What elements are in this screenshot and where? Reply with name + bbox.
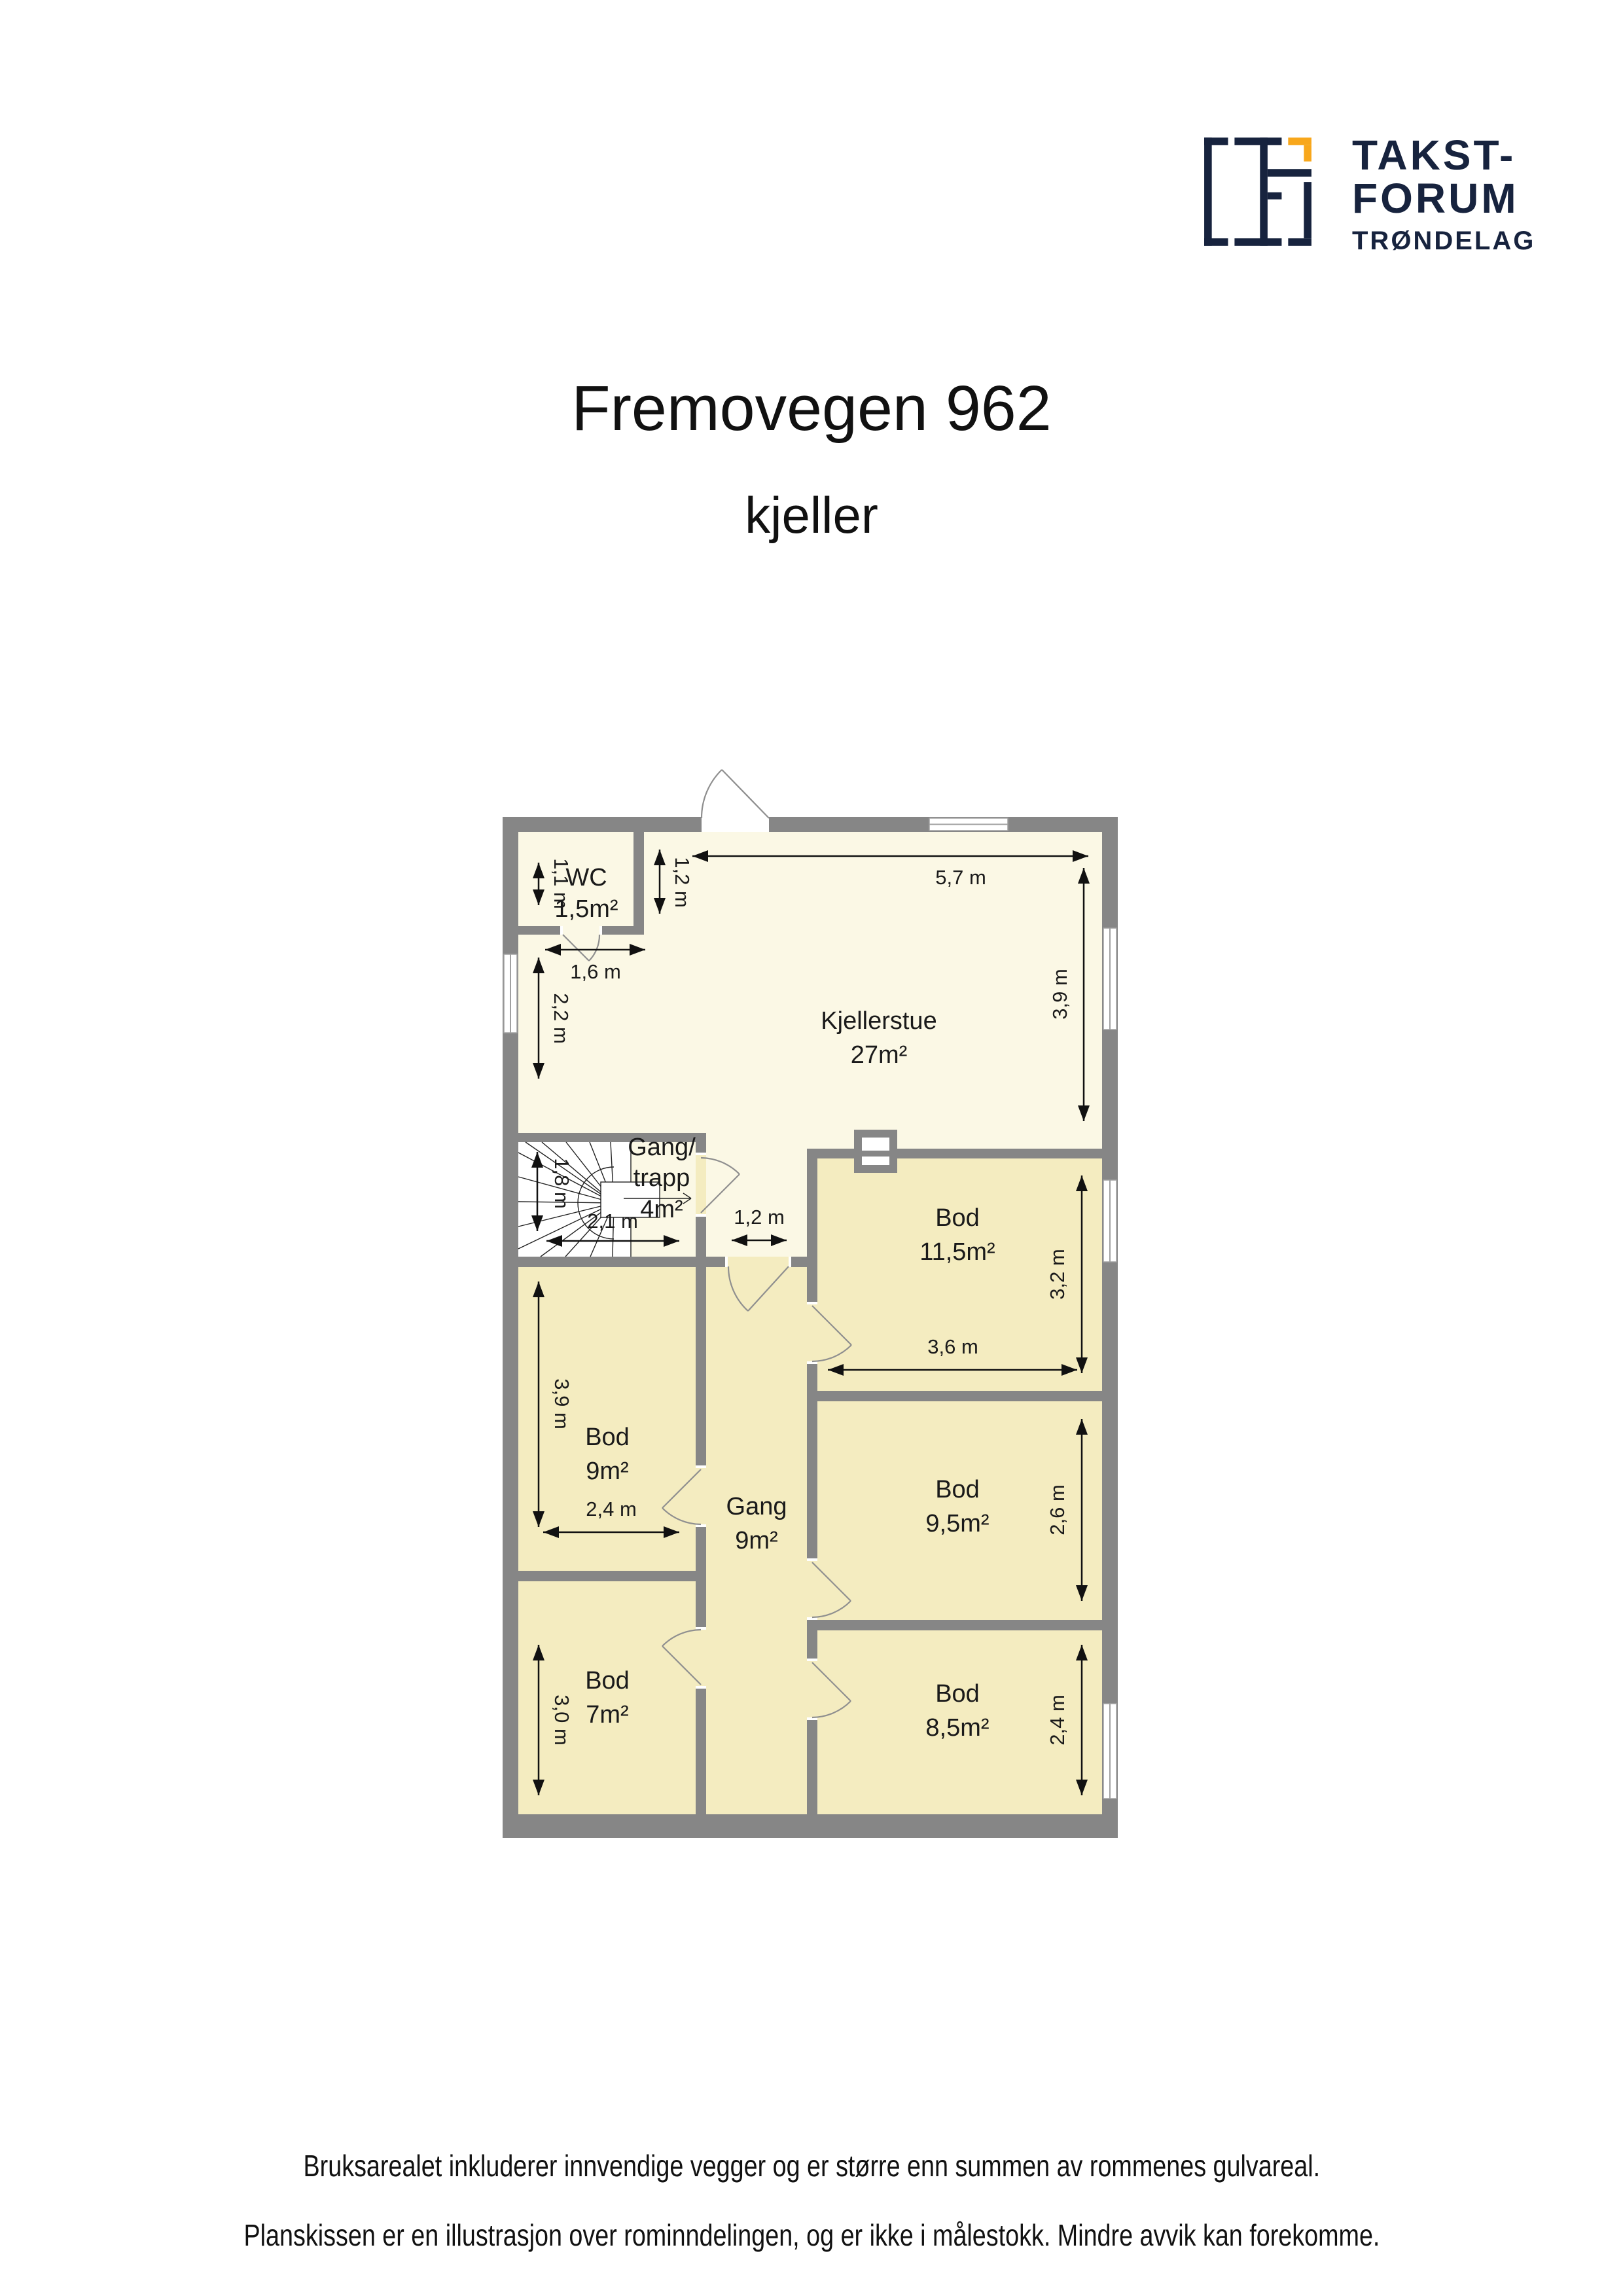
svg-text:9m²: 9m² <box>586 1458 628 1485</box>
wall-corridor-right-a <box>807 1149 817 1302</box>
svg-text:WC: WC <box>565 864 607 891</box>
footer-disclaimer-2: Planskissen er en illustrasjon over romi… <box>0 2217 1623 2253</box>
svg-text:7m²: 7m² <box>586 1701 628 1729</box>
wall-mid-a <box>518 1257 725 1267</box>
svg-text:2,2 m: 2,2 m <box>550 993 573 1044</box>
svg-text:5,7 m: 5,7 m <box>935 866 986 889</box>
wall-bod115-bod95 <box>817 1391 1102 1401</box>
wall-wc-bottom-b <box>602 926 644 935</box>
svg-text:Bod: Bod <box>935 1204 980 1232</box>
svg-text:Bod: Bod <box>935 1680 980 1708</box>
svg-text:2,4 m: 2,4 m <box>1046 1695 1069 1746</box>
svg-text:2,6 m: 2,6 m <box>1046 1484 1069 1535</box>
svg-text:Kjellerstue: Kjellerstue <box>821 1007 936 1035</box>
wall-mid-b <box>791 1257 810 1267</box>
svg-text:1,5m²: 1,5m² <box>554 895 618 923</box>
window-right-kjellerstue <box>1103 928 1116 1030</box>
logo-line-2: FORUM <box>1352 177 1535 220</box>
svg-text:8,5m²: 8,5m² <box>925 1714 989 1742</box>
svg-text:9m²: 9m² <box>735 1527 777 1554</box>
svg-text:27m²: 27m² <box>851 1041 908 1069</box>
chimney <box>854 1130 897 1173</box>
svg-text:3,0 m: 3,0 m <box>550 1695 573 1746</box>
svg-text:3,2 m: 3,2 m <box>1046 1249 1069 1300</box>
document-page: TAKST- FORUM TRØNDELAG Fremovegen 962 kj… <box>0 0 1623 2296</box>
door-entry <box>702 770 769 818</box>
logo-line-3: TRØNDELAG <box>1352 226 1535 256</box>
svg-text:3,6 m: 3,6 m <box>927 1335 978 1358</box>
entry-door-opening <box>702 817 769 832</box>
svg-text:1,8 m: 1,8 m <box>550 1158 573 1209</box>
wall-bod95-bod85 <box>817 1620 1102 1630</box>
svg-text:1,2 m: 1,2 m <box>734 1206 785 1229</box>
room-fill-corridor-top <box>706 1133 807 1257</box>
svg-text:2,4 m: 2,4 m <box>586 1498 637 1520</box>
svg-text:trapp: trapp <box>633 1164 690 1192</box>
wall-corridor-right-d <box>807 1720 817 1814</box>
wall-bod9-bod7 <box>518 1571 706 1581</box>
chimney-flue-2 <box>862 1157 889 1165</box>
wall-wc-bottom-a <box>518 926 560 935</box>
page-title: Fremovegen 962 <box>0 372 1623 445</box>
page-subtitle: kjeller <box>0 486 1623 545</box>
svg-text:Bod: Bod <box>935 1476 980 1503</box>
wall-bod115-top <box>807 1149 1102 1158</box>
window-left <box>504 954 517 1033</box>
window-top <box>929 818 1008 831</box>
wall-corridor-right-b <box>807 1364 817 1558</box>
logo-yellow-corner <box>1288 137 1311 161</box>
chimney-block <box>854 1130 897 1173</box>
wall-exterior-top <box>503 817 1118 832</box>
svg-text:Bod: Bod <box>585 1667 630 1695</box>
wall-exterior-bottom <box>503 1814 1118 1838</box>
wall-corridor-left-a <box>696 1267 706 1465</box>
svg-text:3,9 m: 3,9 m <box>550 1378 573 1429</box>
takstforum-logo-icon <box>1195 128 1321 255</box>
takstforum-logo: TAKST- FORUM TRØNDELAG <box>1195 128 1535 256</box>
svg-text:9,5m²: 9,5m² <box>925 1510 989 1537</box>
window-right-bod85 <box>1103 1704 1116 1799</box>
svg-text:Gang/: Gang/ <box>628 1134 696 1161</box>
svg-text:Bod: Bod <box>585 1424 630 1451</box>
chimney-flue-1 <box>862 1138 889 1151</box>
svg-text:2,1 m: 2,1 m <box>587 1210 638 1232</box>
logo-line-1: TAKST- <box>1352 134 1535 177</box>
logo-wordmark: TAKST- FORUM TRØNDELAG <box>1352 134 1535 256</box>
svg-text:4m²: 4m² <box>640 1196 683 1223</box>
window-right-bod115 <box>1103 1180 1116 1262</box>
svg-text:1,6 m: 1,6 m <box>570 960 621 983</box>
floor-plan: 1,1 m 1,2 m 5,7 m 3,9 m 1,6 m 2,2 m <box>503 738 1118 1838</box>
svg-text:3,9 m: 3,9 m <box>1048 969 1071 1020</box>
svg-text:11,5m²: 11,5m² <box>919 1238 995 1266</box>
svg-text:Gang: Gang <box>726 1493 787 1520</box>
wall-wc-right <box>633 832 644 935</box>
wall-corridor-right-c <box>807 1620 817 1659</box>
wall-corridor-left-c <box>696 1689 706 1814</box>
wall-gangtrapp-right-a <box>696 1133 706 1153</box>
footer-disclaimer-1: Bruksarealet inkluderer innvendige vegge… <box>0 2148 1623 2183</box>
wall-gangtrapp-right-b <box>696 1217 706 1257</box>
svg-text:1,2 m: 1,2 m <box>671 857 694 908</box>
